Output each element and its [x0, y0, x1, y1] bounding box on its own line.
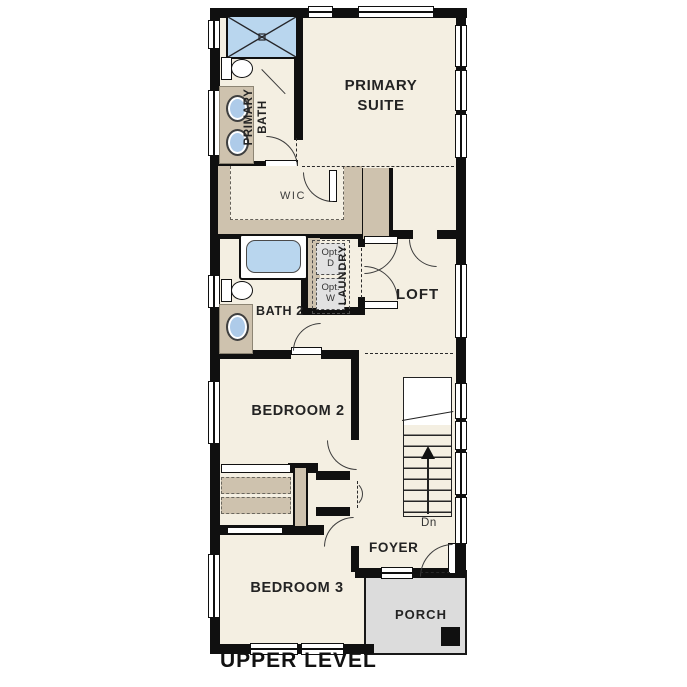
opening-dash: [365, 353, 453, 354]
closet-shelf: [221, 497, 291, 514]
closet-bypass-door: [227, 527, 283, 534]
window: [455, 421, 467, 450]
opening-dash: [302, 166, 454, 167]
shower-fixture: [226, 15, 298, 59]
primary-bath-label: PRIMARY BATH: [242, 80, 292, 154]
bedroom3-label: BEDROOM 3: [237, 579, 357, 598]
laundry-label: LAUNDRY: [337, 235, 363, 315]
toilet-bowl: [231, 59, 253, 78]
window: [455, 25, 467, 67]
door-dash: [361, 248, 362, 298]
closet-shelf: [221, 477, 291, 494]
sink-fixture: [226, 313, 249, 341]
bedroom2-label: BEDROOM 2: [238, 402, 358, 421]
window: [208, 381, 220, 444]
window: [455, 114, 467, 158]
porch-column: [441, 627, 460, 646]
window: [208, 20, 220, 49]
wall: [437, 230, 457, 239]
window: [455, 452, 467, 495]
toilet-bowl: [231, 281, 253, 300]
floor-plan: Opt. D Opt. W LAUNDRY Dn PRIMAR: [0, 0, 687, 687]
window: [358, 6, 434, 18]
foyer-label: FOYER: [369, 540, 419, 555]
window: [455, 264, 467, 338]
bath2-label: BATH 2: [256, 304, 304, 318]
window: [455, 497, 467, 544]
door-dash: [296, 138, 297, 162]
window: [455, 70, 467, 111]
stairs-dn-label: Dn: [421, 517, 437, 529]
staircase: [403, 377, 452, 517]
window: [208, 554, 220, 618]
primary-suite-label: PRIMARY SUITE: [326, 76, 436, 115]
stair-direction-line: [427, 458, 429, 514]
plan-title: UPPER LEVEL: [220, 649, 377, 673]
window: [455, 383, 467, 419]
wall: [316, 507, 350, 516]
window: [308, 6, 333, 18]
wall: [351, 350, 359, 440]
bathtub-fixture: [246, 240, 301, 273]
chase: [363, 168, 389, 239]
wall: [351, 546, 359, 572]
porch-label: PORCH: [391, 607, 451, 622]
window: [381, 567, 413, 579]
door-swing-arc: [337, 481, 363, 507]
wic-label: WIC: [272, 190, 314, 202]
door-dash: [357, 481, 358, 508]
door-leaf: [364, 301, 398, 309]
closet-bypass-door: [221, 464, 291, 473]
stair-arrow-icon: [421, 446, 435, 459]
wall: [316, 471, 350, 480]
loft-label: LOFT: [396, 286, 439, 303]
door-dash: [420, 572, 450, 573]
closet-shelf: [293, 468, 308, 526]
